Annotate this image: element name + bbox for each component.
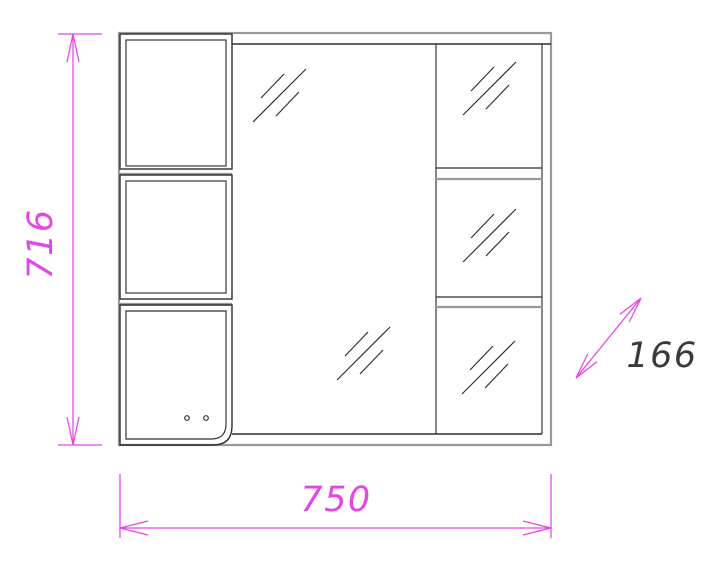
width-dimension-label: 750: [300, 480, 371, 520]
handle-hole-right: [204, 416, 209, 421]
glass-panel-1-hatch: [463, 62, 516, 115]
mirror-hatch-top: [253, 69, 306, 122]
glass-panel-2-hatch: [463, 209, 516, 262]
glass-panel-3-hatch: [462, 341, 515, 394]
drawing-canvas: 716 750 166: [0, 0, 720, 569]
door-compartment-1-outline: [120, 34, 232, 169]
height-dimension: 716: [21, 34, 102, 445]
height-dimension-label: 716: [21, 208, 61, 279]
depth-dimension: 166: [576, 298, 698, 378]
right-glass-column: [436, 168, 542, 307]
door-compartment-2-outline: [120, 175, 232, 299]
width-dimension: 750: [120, 474, 551, 538]
glass-hatch-marks: [253, 62, 516, 394]
left-door-column: [119, 34, 232, 445]
cabinet-structure: [119, 33, 551, 445]
door-compartment-3-outline: [120, 305, 232, 445]
handle-hole-left: [185, 416, 190, 421]
depth-dimension-label: 166: [626, 336, 697, 376]
door-compartment-1-inner-bevel: [126, 40, 226, 166]
mirror-hatch-bottom: [337, 327, 390, 380]
door-compartment-3-inner-bevel: [126, 311, 226, 439]
cabinet-technical-drawing: 716 750 166: [0, 0, 720, 569]
door-compartment-2-inner-bevel: [126, 181, 226, 293]
